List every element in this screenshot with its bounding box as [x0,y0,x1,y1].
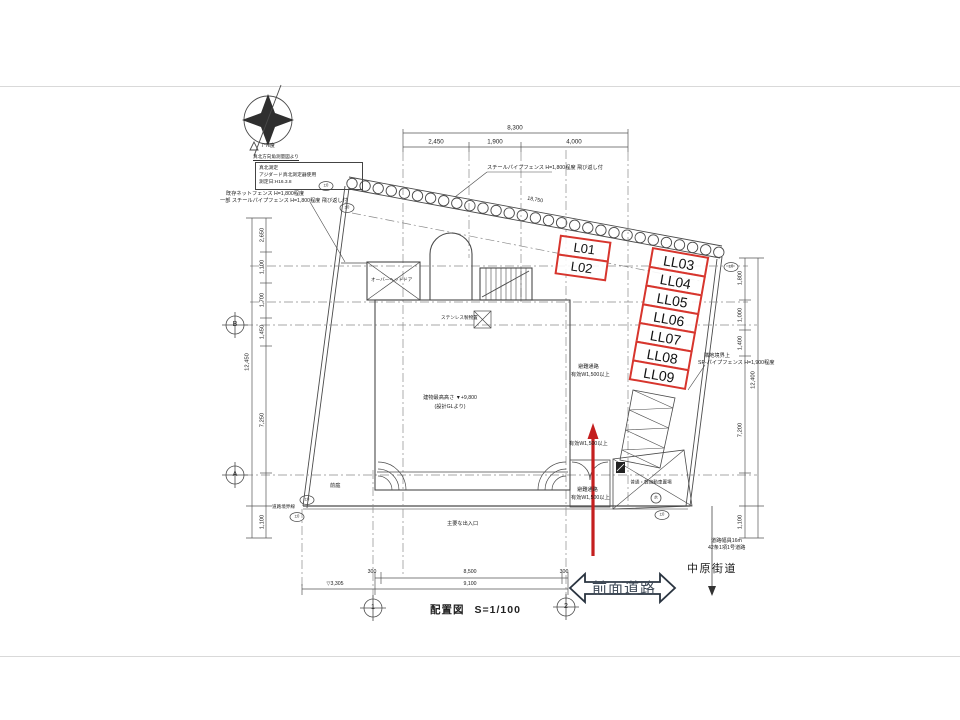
road-boundary-label: 道路境界線 [272,504,295,509]
grid-bubble-2: 2 [564,603,568,611]
dim-left-seg1: 2,650 [260,228,267,243]
effective-width-label-1: 有効W1,500以上 [571,373,610,379]
plan-title: 配置図S=1/100 [430,604,531,616]
building-height-label: 建物最高高さ ▼+9,800 [407,396,493,402]
north-box-line3: 測定日:H16.3.8 [259,179,359,186]
level-bubble-3: ±0 [729,265,734,270]
fence-top-note: スチールパイプフェンス H=1,800程度 飛び返し付 [487,166,603,172]
dim-top-seg3: 4,000 [566,138,581,145]
effective-width-label-2: 有効W1,500以上 [569,442,608,448]
dim-right-seg3: 1,400 [738,336,745,351]
level-bubble-4: ±0 [305,498,310,503]
dim-left-seg3: 1,700 [260,293,267,308]
parking-stack-upper: L01 L02 [554,235,611,282]
stairs [482,268,529,300]
dim-bottom-seg1: 300 [368,570,377,576]
parking-space-label: 普通・軽自動車置場 [630,479,671,484]
grid-bubble-b: B [233,321,238,329]
escape-corridor-label-1: 避難通路 [578,365,599,371]
dim-bottom-level: ▽3,305 [327,582,344,588]
level-bubble-2: ±0 [345,206,350,211]
top-fence-blocks [347,178,724,257]
dim-right-seg2: 1,000 [738,308,745,323]
north-box-line2: アジダード真北測定器使用 [259,172,359,179]
road-class-note: 42条1項1号道路 [708,546,745,552]
dim-left-seg4: 1,450 [260,325,267,340]
dim-right-seg5: 1,100 [738,515,745,530]
plan-title-name: 配置図 [430,604,465,616]
dim-right-total: 12,400 [751,371,758,389]
dim-top-seg1: 2,450 [428,138,443,145]
main-entrance-label: 主要な出入口 [447,522,478,528]
building-height-ref-label: (設計GLより) [407,405,493,411]
storage-label: ステンレス製物置 [441,315,478,320]
building-outline [341,233,570,490]
north-measure-box: 真北測定 アジダード真北測定器使用 測定日:H16.3.8 [255,162,363,190]
plan-title-scale: S=1/100 [475,604,521,616]
level-bubble-1: ±0 [324,184,329,189]
grid-bubble-1: 1 [371,604,375,612]
fence-right-note2: SP-パイプフェンス H=1,900程度 [698,361,774,367]
overhead-door-label: オーバーヘッドドア [371,277,412,282]
level-bubble-6: ±0 [660,513,665,518]
fence-left-note2: 一部 スチールパイプフェンス H=1,800程度 飛び返し付 [220,199,348,205]
avenue-label: 中原街道 [687,563,737,576]
dim-right-seg1: 1,800 [738,271,745,286]
dim-top-seg2: 1,900 [487,138,502,145]
front-road-label: 前面道路 [578,580,670,597]
dim-right-seg4: 7,200 [738,423,745,438]
level-bubble-5: ±0 [295,515,300,520]
escape-corridor-label-2: 避難通路 [577,488,598,494]
dim-bottom-total: 9,100 [464,582,477,588]
dim-left-seg6: 1,100 [260,515,267,530]
north-survey-note: 真北方向角測量図より [253,154,299,161]
dim-bottom-seg2: 8,500 [464,570,477,576]
front-garden-label: 前庭 [330,484,340,490]
effective-width-label-3: 有効W1,500以上 [571,496,610,502]
north-box-line1: 真北測定 [259,165,359,172]
grid-bubble-a: A [233,471,238,479]
dim-top-total: 8,300 [507,124,522,131]
dim-left-seg5: 7,250 [260,413,267,428]
water-label: 水 [654,496,658,501]
dim-left-seg2: 1,100 [260,260,267,275]
dim-left-total: 12,450 [245,353,252,371]
dim-bottom-seg3: 300 [560,570,569,576]
site-plan-slide: L01 L02 LL03 LL04 LL05 LL06 LL07 LL08 LL… [0,0,960,720]
north-angle-label: 7°N度 [261,144,275,150]
